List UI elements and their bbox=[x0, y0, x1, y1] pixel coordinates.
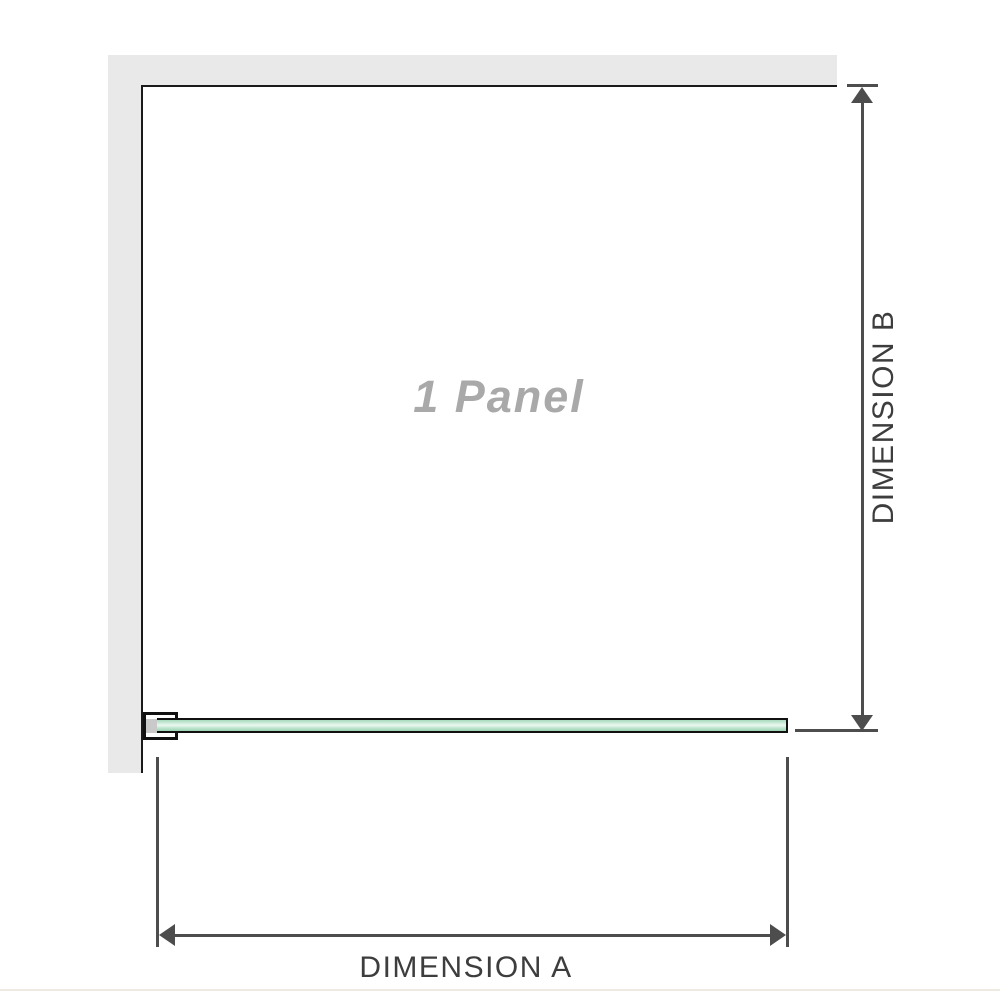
dimension-a-label: DIMENSION A bbox=[359, 951, 572, 985]
glass-panel bbox=[157, 718, 788, 733]
dimension-a-extension-left bbox=[156, 757, 159, 947]
wall-left bbox=[108, 55, 143, 773]
panel-count-label: 1 Panel bbox=[413, 371, 585, 423]
dimension-b-line bbox=[861, 99, 864, 719]
page-divider-line bbox=[0, 989, 1000, 991]
dimension-b-label: DIMENSION B bbox=[867, 310, 901, 525]
wall-top bbox=[108, 55, 837, 86]
wall-bracket-channel bbox=[146, 719, 157, 733]
arrow-down-icon bbox=[851, 715, 873, 731]
dimension-a-line bbox=[171, 934, 774, 937]
dimension-a-extension-right bbox=[786, 757, 789, 947]
arrow-right-icon bbox=[770, 924, 786, 946]
panel-dimension-diagram: 1 Panel DIMENSION B DIMENSION A bbox=[0, 0, 1000, 1000]
arrow-up-icon bbox=[851, 87, 873, 103]
arrow-left-icon bbox=[159, 924, 175, 946]
